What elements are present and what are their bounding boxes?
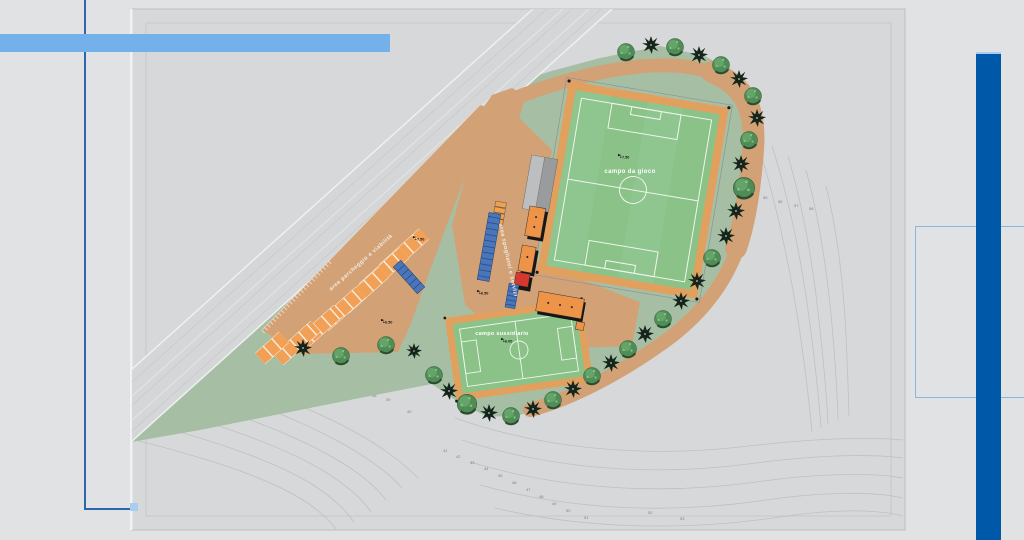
orange-kiosk xyxy=(575,321,584,330)
contour-label: 47 xyxy=(526,487,531,492)
round-tree-icon xyxy=(378,337,395,354)
contour-label: 45 xyxy=(498,473,503,478)
right-accent-bar xyxy=(976,52,1001,540)
contour-label: 43 xyxy=(470,460,475,465)
contour-label: 57 xyxy=(794,203,799,208)
right-frame-rect xyxy=(915,226,1024,398)
contour-label: 42 xyxy=(456,454,461,459)
secondary-field-label: campo sussidiario xyxy=(475,331,529,337)
spot-elevation: +7.50 xyxy=(413,236,424,242)
main-field-label: campo da gioco xyxy=(604,169,655,175)
spot-elevation-value: +6.00 xyxy=(503,340,513,344)
round-tree-icon xyxy=(503,408,520,425)
round-tree-icon xyxy=(655,311,672,328)
contour-label: 50 xyxy=(566,508,571,513)
round-tree-icon xyxy=(620,341,637,358)
round-tree-icon xyxy=(741,132,758,149)
contour-label: 46 xyxy=(512,480,517,485)
contour-label: 49 xyxy=(552,501,557,506)
round-tree-icon xyxy=(426,367,443,384)
spot-elevation: +6.50 xyxy=(381,319,392,325)
contour-label: 41 xyxy=(443,448,448,453)
contour-label: 39 xyxy=(386,397,391,402)
contour-label: 44 xyxy=(484,466,489,471)
round-tree-icon xyxy=(713,57,730,74)
round-tree-icon xyxy=(584,368,601,385)
contour-label: 52 xyxy=(648,510,653,515)
round-tree-icon xyxy=(618,44,635,61)
round-tree-icon xyxy=(704,250,721,267)
round-tree-icon xyxy=(457,394,477,414)
spot-elevation: +6.50 xyxy=(477,290,488,296)
round-tree-icon xyxy=(333,348,350,365)
round-tree-icon xyxy=(733,177,754,198)
spot-elevation: +7.50 xyxy=(618,154,629,160)
top-accent-bar xyxy=(0,34,390,52)
page-background: 3638394041424344454647484950515253555657… xyxy=(0,0,1024,538)
round-tree-icon xyxy=(745,88,762,105)
left-frame-corner-square xyxy=(130,503,138,511)
contour-label: 40 xyxy=(407,409,412,414)
contour-label: 55 xyxy=(763,195,768,200)
spot-elevation: +6.00 xyxy=(501,338,512,344)
spot-elevation-value: +6.50 xyxy=(383,321,393,325)
left-frame-rect xyxy=(84,0,138,510)
contour-label: 51 xyxy=(584,515,589,520)
round-tree-icon xyxy=(667,39,684,56)
contour-label: 53 xyxy=(680,516,685,521)
spot-elevation-value: +6.50 xyxy=(479,292,489,296)
contour-label: 56 xyxy=(778,199,783,204)
contour-label: 48 xyxy=(539,494,544,499)
contour-label: 58 xyxy=(809,206,814,211)
site-plan-svg: 3638394041424344454647484950515253555657… xyxy=(0,0,1024,538)
spot-elevation-value: +7.50 xyxy=(415,238,425,242)
spot-elevation-value: +7.50 xyxy=(620,156,630,160)
round-tree-icon xyxy=(545,392,562,409)
